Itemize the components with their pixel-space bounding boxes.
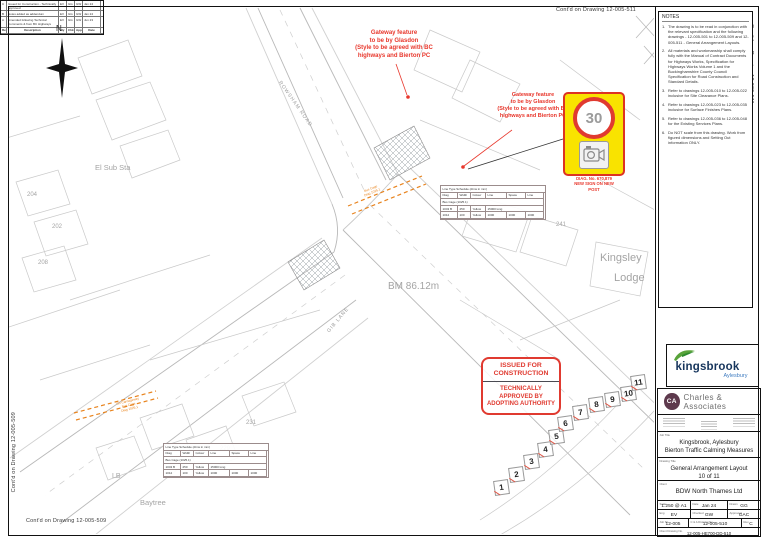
contd-left-label: Cont'd on Drawing 12-005-509 (11, 412, 17, 492)
job-no-cell: Job No.12-005 (658, 519, 689, 527)
schedule-cell: 1000 (230, 470, 249, 477)
drawing-title-label: Drawing Title (660, 459, 676, 463)
note-item: 4.Refer to drawings 12-005-023 to 12-005… (662, 102, 749, 112)
kingsbrook-leaf-icon (672, 348, 696, 362)
client-name: BDW North Thames Ltd (658, 488, 760, 497)
job-number-row: Job No.12-005 C & A Drawing No.12-005-51… (658, 519, 760, 528)
schedule-cell: 100 (181, 470, 194, 477)
schedule-cell: 1043 B (441, 206, 458, 213)
rev-cell: Rev.C (742, 519, 760, 527)
address-text (663, 418, 685, 428)
drawn-value: GG (740, 504, 747, 509)
date-label: Date (693, 502, 699, 506)
schedule-title: Line Type Schedule (dims in mm) (441, 186, 545, 193)
schedule-header: Colour (471, 193, 486, 200)
panel-divider (655, 6, 656, 535)
road-centrelines (45, 10, 645, 495)
client-label: Client (660, 482, 667, 486)
scale-cell: Scale1:250 @ A1 (658, 501, 691, 510)
kingsbrook-place: Aylesbury (723, 373, 747, 379)
sign-caption: DIAG. No. 670,879 NEW SIGN ON NEW POST (556, 176, 632, 192)
house-number: 204 (27, 192, 37, 198)
schedule-header: Space (230, 451, 249, 458)
date-value: Jan 24 (702, 504, 716, 509)
note-number: 3. (662, 88, 666, 98)
consultant-name: Charles & Associates (684, 393, 760, 411)
scale-label: Scale (660, 502, 667, 506)
note-item: 6.Do NOT scale from this drawing. Work f… (662, 130, 749, 146)
checked-value: GW (705, 513, 713, 518)
hatched-areas (288, 126, 430, 290)
plot-marker: 6 (557, 415, 574, 432)
title-block: CA Charles & Associates Job Title Kingsb… (657, 388, 761, 537)
client-drawing-no-value: 12-005-HE700-DD-510 (658, 531, 760, 536)
schedule-cell: 15000 long (486, 206, 544, 213)
lodge-label: Lodge (614, 272, 645, 284)
speed-limit-sign: 30 (563, 92, 625, 176)
note-text: Do NOT scale from this drawing. Work fro… (668, 130, 749, 146)
schedule-group-row: Bus Cage (1025.1) (441, 199, 544, 206)
drawn-cell: DrawnGG (728, 501, 760, 510)
schedule-cell: 1012 (441, 212, 458, 219)
rev-label: Rev. (744, 520, 750, 524)
note-item: 1.The drawing is to be read in conjuncti… (662, 24, 749, 45)
schedule-cell: 1000 (507, 212, 526, 219)
eng-label: Eng (660, 511, 665, 515)
consultant-logo-row: CA Charles & Associates (658, 389, 760, 415)
schedule-cell: Yellow (471, 212, 486, 219)
drawing-no-cell: C & A Drawing No.12-005-510 (689, 519, 742, 527)
date-cell: DateJan 24 (691, 501, 728, 510)
note-text: All materials and workmanship shall comp… (668, 48, 749, 84)
house-number: 241 (556, 222, 566, 228)
note-text: Refer to drawings 12-005-023 to 12-005-0… (668, 102, 749, 112)
plot-marker: 11 (630, 374, 647, 391)
drawing-no-label: C & A Drawing No. (691, 520, 714, 524)
note-item: 5.Refer to drawings 12-005-036 to 12-005… (662, 116, 749, 126)
plot-marker: 1 (493, 479, 510, 496)
schedule-cell: 100 (458, 212, 471, 219)
charles-associates-monogram-icon: CA (664, 393, 680, 410)
benchmark-label: BM 86.12m (388, 281, 439, 292)
notes-title: NOTES (662, 14, 749, 22)
drawn-label: Drawn (730, 502, 738, 506)
schedule-header: Line (526, 193, 544, 200)
schedule-cell: 250 (181, 464, 194, 471)
client-section: Client BDW North Thames Ltd (658, 481, 760, 501)
schedule-cell: 1000 (209, 470, 230, 477)
gateway-annotation-1: Gateway feature to be by Glasdon (Style … (345, 30, 443, 60)
rev-value: C (749, 522, 752, 527)
eng-cell: EngEV (658, 510, 691, 519)
address-text (701, 421, 717, 431)
schedule-header: Space (507, 193, 526, 200)
speed-value: 30 (586, 110, 603, 127)
house-number: 208 (38, 260, 48, 266)
plot-marker: 3 (523, 453, 540, 470)
baytree-label: Baytree (140, 498, 166, 507)
schedule-cell: Yellow (194, 470, 209, 477)
stamp-top-text: ISSUED FOR CONSTRUCTION (483, 359, 559, 382)
bus-cage-markings (74, 176, 426, 420)
schedule-cell: 250 (458, 206, 471, 213)
lb-label: LB (112, 473, 121, 480)
drawing-title-section: Drawing Title General Arrangement Layout… (658, 458, 760, 481)
kingsley-label: Kingsley (600, 252, 642, 264)
schedule-header: Width (181, 451, 194, 458)
drawing-title: General Arrangement Layout 10 of 11 (658, 465, 760, 481)
schedule-header: Line (209, 451, 230, 458)
job-title-section: Job Title Kingsbrook, Aylesbury Bierton … (658, 432, 760, 458)
schedule-header: Colour (194, 451, 209, 458)
note-number: 5. (662, 116, 666, 126)
road-edges (10, 8, 670, 535)
kingsbrook-logo: kingsbrook Aylesbury (666, 344, 759, 387)
survey-marks (636, 16, 660, 64)
address-text (733, 418, 755, 428)
schedule-cell: 1000 (486, 212, 507, 219)
schedule-header: Line (486, 193, 507, 200)
line-type-schedule-table: Line Type Schedule (dims in mm) DiagWidt… (163, 443, 269, 478)
schedule-header: Diag (441, 193, 458, 200)
checked-cell: CheckedGW (691, 510, 728, 519)
schedule-group-row: Bus Cage (1025.1) (164, 457, 267, 464)
plot-marker: 2 (508, 466, 525, 483)
north-arrow-icon (46, 38, 78, 98)
note-number: 1. (662, 24, 666, 45)
schedule-cell: Yellow (471, 206, 486, 213)
plot-marker: 8 (588, 396, 605, 413)
eng-value: EV (671, 513, 677, 518)
note-number: 4. (662, 102, 666, 112)
schedule-header: Width (458, 193, 471, 200)
note-number: 2. (662, 48, 666, 84)
el-sub-sta-label: El Sub Sta (95, 163, 130, 172)
job-title-label: Job Title (660, 433, 670, 437)
schedule-cell: Yellow (194, 464, 209, 471)
schedule-cell: 1000 (526, 212, 544, 219)
line-type-schedule-table: Line Type Schedule (dims in mm) DiagWidt… (440, 185, 546, 220)
drawing-sheet: N ROWSHAM ROAD GIB LANE BM 86.12m El Sub… (0, 0, 768, 542)
consultant-address-row (658, 415, 760, 432)
note-item: 2.All materials and workmanship shall co… (662, 48, 749, 84)
note-number: 6. (662, 130, 666, 146)
client-drawing-no-row: Client Drawing No. 12-005-HE700-DD-510 (658, 528, 760, 536)
stamp-bottom-text: TECHNICALLY APPROVED BY ADOPTING AUTHORI… (483, 382, 559, 413)
site-plan-linework (0, 0, 768, 542)
schedule-header: Diag (164, 451, 181, 458)
plot-marker: 7 (572, 404, 589, 421)
schedule-cell: 1000 (249, 470, 267, 477)
schedule-title: Line Type Schedule (dims in mm) (164, 444, 268, 451)
approved-cell: ApprovedGAC (728, 510, 760, 519)
note-text: Refer to drawings 12-005-036 to 12-005-0… (668, 116, 749, 126)
house-number: 202 (52, 224, 62, 230)
note-item: 3.Refer to drawings 12-005-010 to 12-005… (662, 88, 749, 98)
note-text: The drawing is to be read in conjunction… (668, 24, 749, 45)
house-number: 231 (246, 420, 256, 426)
schedule-header: Line (249, 451, 267, 458)
notes-panel: NOTES 1.The drawing is to be read in con… (658, 11, 753, 308)
contd-top-label: Cont'd on Drawing 12-005-511 (556, 7, 636, 13)
schedule-cell: 1012 (164, 470, 181, 477)
issued-for-construction-stamp: ISSUED FOR CONSTRUCTION TECHNICALLY APPR… (481, 357, 561, 415)
speed-30-roundel-icon: 30 (573, 97, 615, 139)
north-label: N (56, 24, 62, 33)
schedule-cell: 1043 B (164, 464, 181, 471)
approved-label: Approved (730, 511, 742, 515)
note-text: Refer to drawings 12-005-010 to 12-005-0… (668, 88, 749, 98)
job-no-label: Job No. (660, 520, 670, 524)
speed-camera-icon (579, 141, 609, 169)
plot-marker: 9 (604, 391, 621, 408)
schedule-cell: 15000 long (209, 464, 267, 471)
contd-bottom-label: Cont'd on Drawing 12-005-509 (26, 518, 106, 524)
kingsbrook-wordmark: kingsbrook (676, 361, 740, 373)
checked-label: Checked (693, 511, 704, 515)
job-title: Kingsbrook, Aylesbury Bierton Traffic Ca… (658, 439, 760, 455)
